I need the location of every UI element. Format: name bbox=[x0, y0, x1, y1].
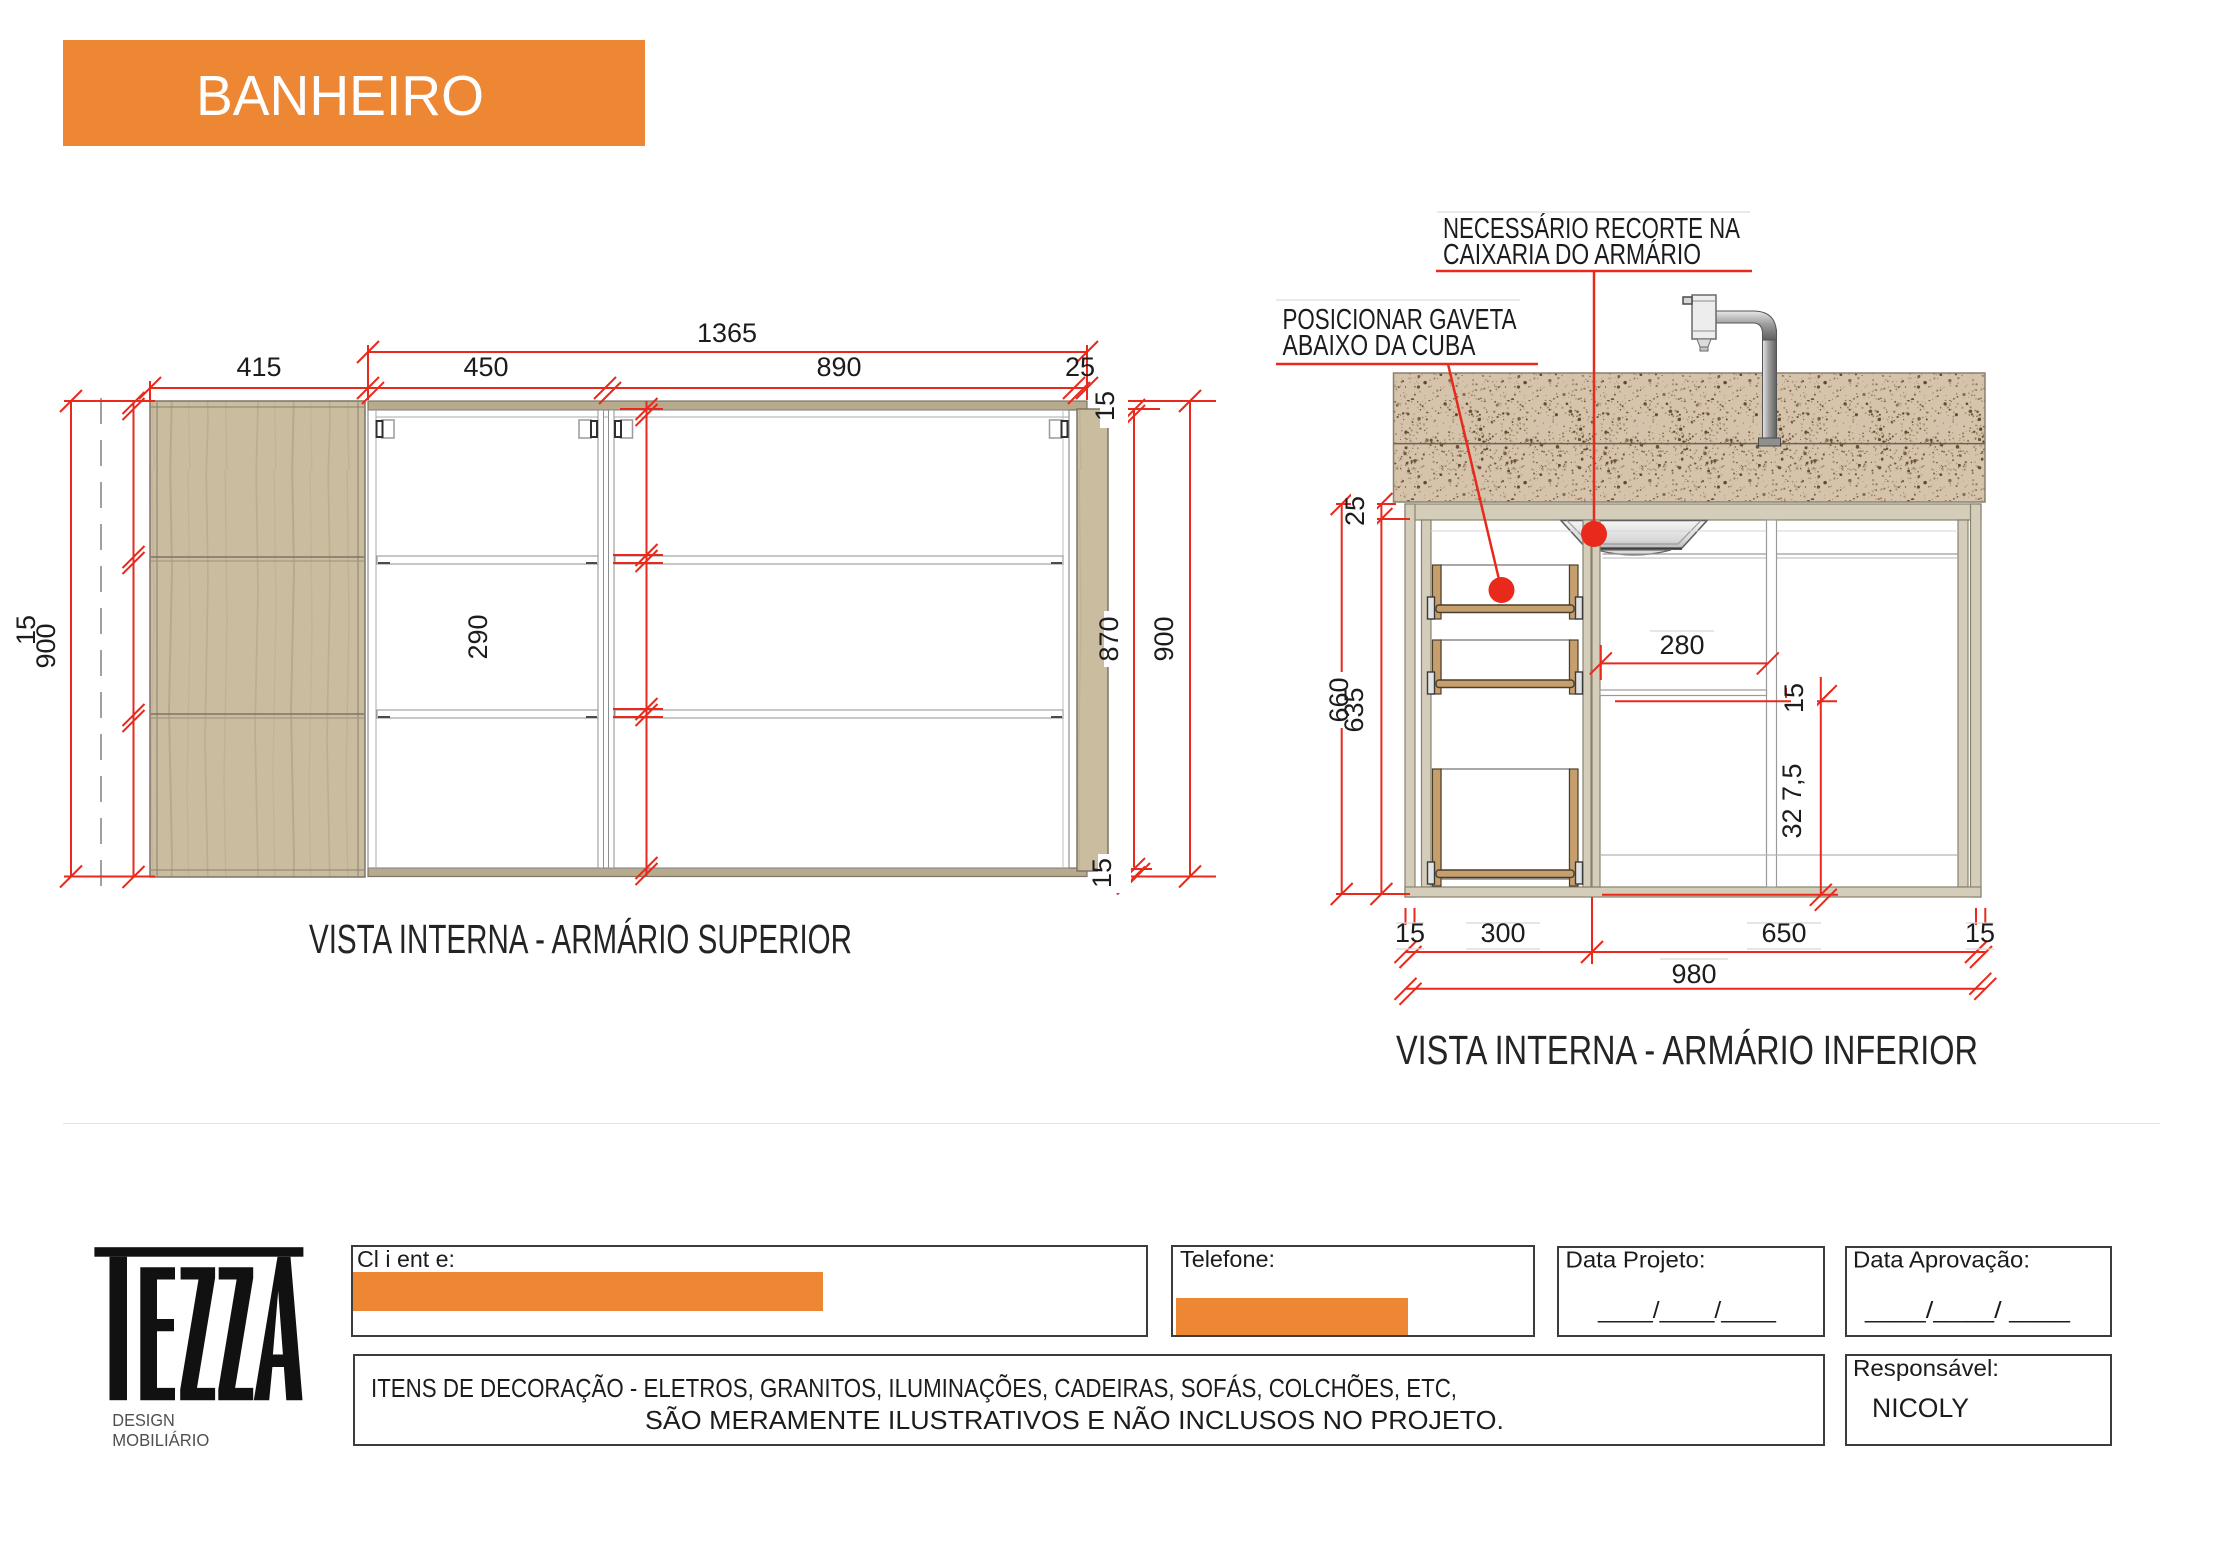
svg-text:32 7,5: 32 7,5 bbox=[1777, 763, 1807, 838]
svg-text:VISTA INTERNA - ARMÁRIO INFERI: VISTA INTERNA - ARMÁRIO INFERIOR bbox=[1396, 1027, 1978, 1073]
svg-text:870: 870 bbox=[1094, 616, 1124, 661]
svg-text:415: 415 bbox=[236, 352, 281, 382]
svg-text:15: 15 bbox=[1965, 918, 1995, 948]
svg-text:25: 25 bbox=[1340, 496, 1370, 526]
svg-text:CAIXARIA DO ARMÁRIO: CAIXARIA DO ARMÁRIO bbox=[1443, 238, 1701, 271]
svg-text:15: 15 bbox=[1395, 918, 1425, 948]
svg-text:15: 15 bbox=[1779, 683, 1809, 713]
svg-text:25: 25 bbox=[1065, 352, 1095, 382]
svg-text:DESIGN: DESIGN bbox=[112, 1410, 175, 1430]
svg-text:980: 980 bbox=[1671, 959, 1716, 989]
svg-text:900: 900 bbox=[1149, 616, 1179, 661]
svg-text:300: 300 bbox=[1480, 918, 1525, 948]
svg-text:MOBILIÁRIO: MOBILIÁRIO bbox=[112, 1430, 209, 1450]
svg-text:890: 890 bbox=[816, 352, 861, 382]
svg-text:290: 290 bbox=[463, 614, 493, 659]
svg-text:15: 15 bbox=[1087, 858, 1117, 888]
svg-text:15: 15 bbox=[1090, 391, 1120, 421]
svg-text:VISTA INTERNA - ARMÁRIO SUPERI: VISTA INTERNA - ARMÁRIO SUPERIOR bbox=[309, 916, 852, 962]
svg-text:15: 15 bbox=[11, 615, 41, 645]
svg-text:ABAIXO DA CUBA: ABAIXO DA CUBA bbox=[1283, 330, 1477, 362]
svg-text:450: 450 bbox=[463, 352, 508, 382]
svg-text:635: 635 bbox=[1339, 687, 1369, 732]
svg-text:650: 650 bbox=[1761, 918, 1806, 948]
svg-text:280: 280 bbox=[1659, 630, 1704, 660]
svg-text:1365: 1365 bbox=[697, 318, 757, 348]
